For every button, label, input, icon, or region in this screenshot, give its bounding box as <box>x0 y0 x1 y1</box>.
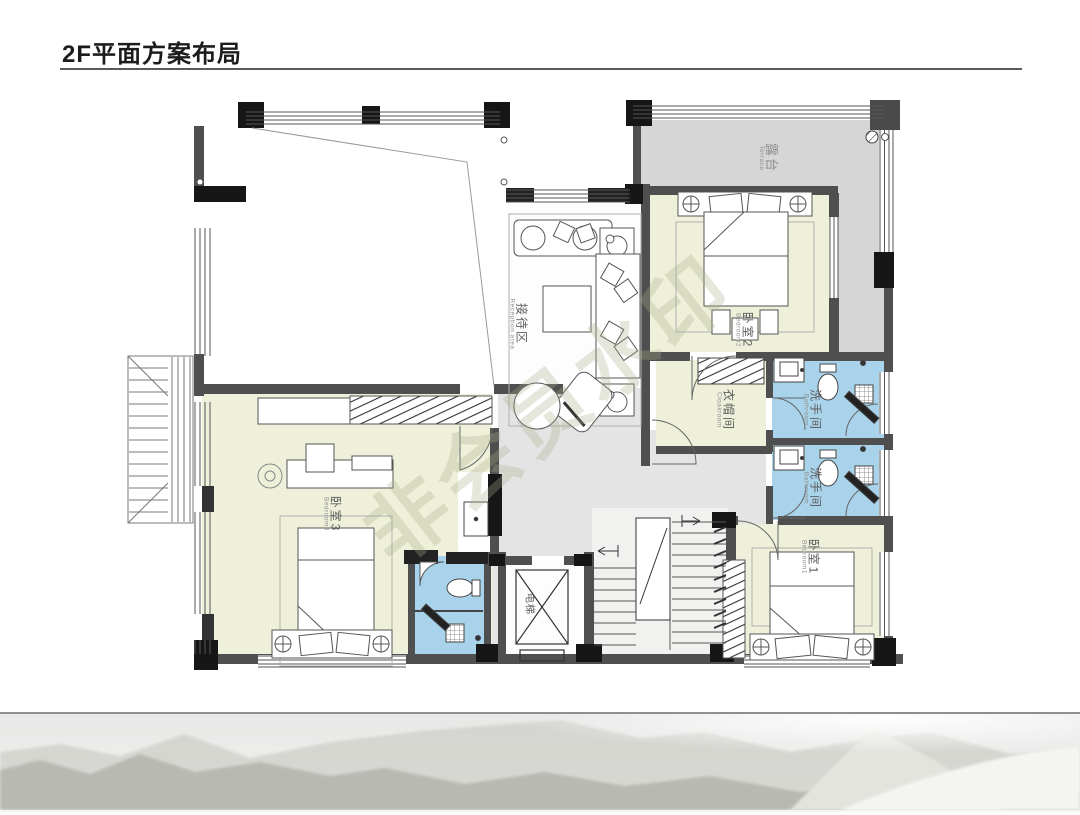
slide-page: { "page": { "title": "2F平面方案布局", "waterm… <box>0 0 1080 810</box>
label-bedroom1: 卧室1 Bedroom1 <box>800 539 819 576</box>
label-cloakroom: 衣帽间 Cloakroom <box>715 389 734 431</box>
mountain-image <box>0 714 1080 810</box>
label-elevator: 电梯 <box>523 593 534 615</box>
label-terrace: 露台 Terrace <box>758 143 778 173</box>
label-bedroom3: 卧室3 Bedroom3 <box>322 496 341 533</box>
void-room-floor <box>202 128 497 386</box>
label-bedroom2: 卧室2 Bedroom2 <box>734 312 753 349</box>
elevator-floor <box>506 560 584 658</box>
roof-canopy <box>128 356 193 523</box>
footer-mountain-banner <box>0 712 1080 812</box>
cloakroom-wardrobe <box>698 358 764 384</box>
label-reception: 接待区 Reception area <box>508 298 527 349</box>
label-bathroom-lower: 洗手间 Bathroom <box>802 467 821 509</box>
label-bathroom-upper: 洗手间 Bathroom <box>802 389 821 431</box>
floorplan-drawing <box>0 0 1080 810</box>
